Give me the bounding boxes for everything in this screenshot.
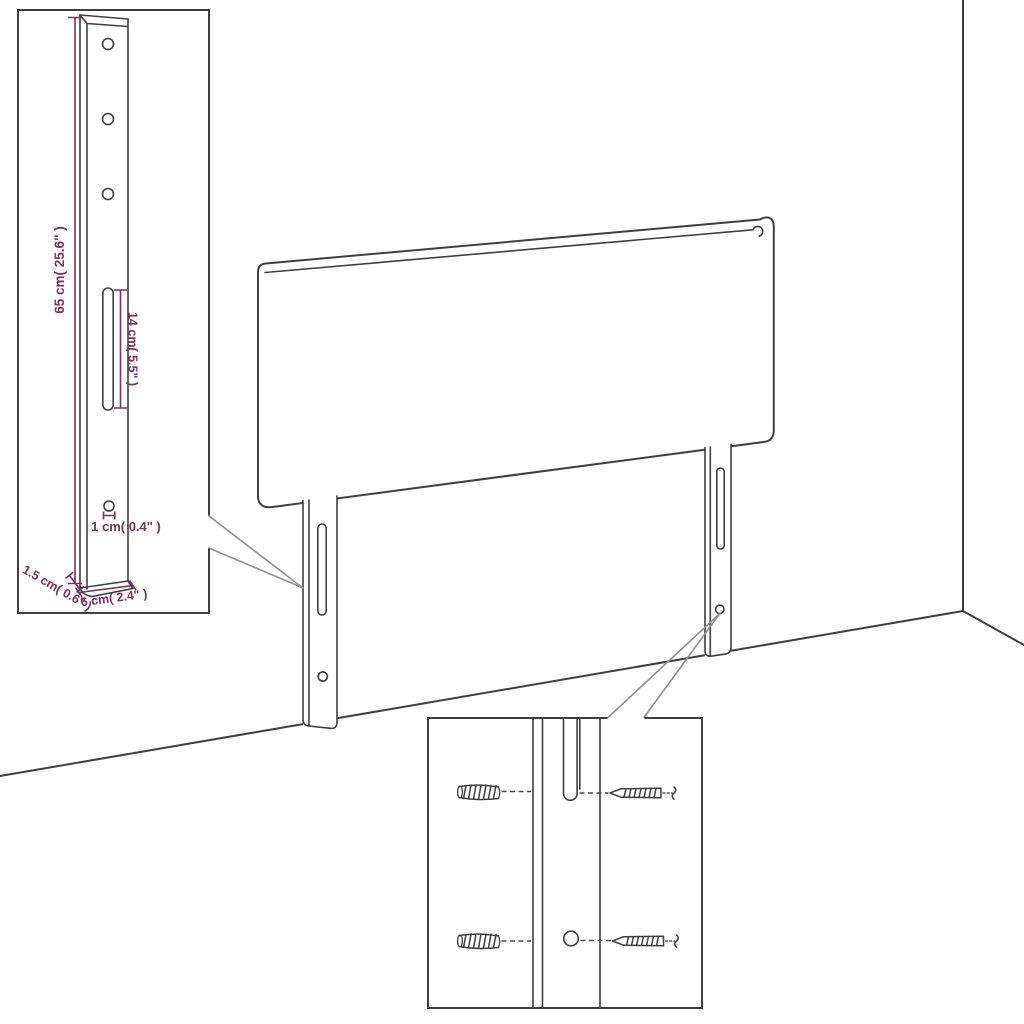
headboard-left-leg — [303, 496, 337, 730]
headboard-assembly-diagram: 65 cm( 25.6" ) 14 cm( 5.5" ) 1 cm( 0.4" … — [0, 0, 1024, 1024]
hardware-detail-inset — [428, 718, 702, 1008]
panel-face — [258, 217, 774, 507]
bracket-callout-lines — [209, 516, 303, 588]
callout-line — [644, 614, 720, 718]
dimension-label-hole-diameter: 1 cm( 0.4" ) — [91, 519, 161, 534]
bracket-drawing — [80, 15, 133, 597]
dimension-label-slot-length: 14 cm( 5.5" ) — [126, 312, 140, 386]
screw-icon — [613, 935, 679, 947]
dimension-height: 65 cm( 25.6" ) — [52, 18, 82, 584]
wall-plug-icon — [458, 785, 500, 800]
floor-line-left — [0, 611, 963, 776]
left-leg-face — [303, 496, 337, 730]
callout-line — [209, 548, 303, 588]
diagram-canvas: 65 cm( 25.6" ) 14 cm( 5.5" ) 1 cm( 0.4" … — [0, 0, 1024, 1024]
headboard-panel — [258, 217, 774, 507]
leg-bar-slot — [564, 718, 578, 800]
leg-bar-hole — [564, 931, 579, 946]
wall-plug-icon — [458, 934, 500, 949]
leg-bar-drawing — [533, 718, 600, 1008]
floor-line-right — [963, 611, 1024, 645]
hardware-callout-lines — [608, 614, 720, 718]
inset-border — [428, 718, 702, 1008]
bracket-detail-inset: 65 cm( 25.6" ) 14 cm( 5.5" ) 1 cm( 0.4" … — [18, 10, 209, 613]
callout-line — [608, 614, 720, 718]
callout-line — [209, 516, 303, 588]
screw-icon — [610, 787, 676, 799]
dimension-label-height: 65 cm( 25.6" ) — [52, 226, 67, 313]
